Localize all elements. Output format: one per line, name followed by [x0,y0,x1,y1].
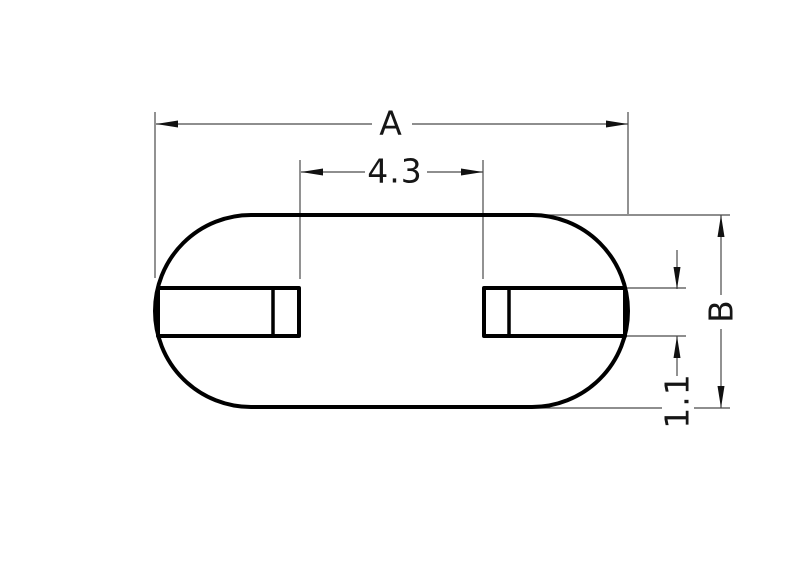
dim-b-arrow-top [718,215,725,237]
right-slot [484,288,625,336]
dim-a-arrow-left [156,121,178,128]
part-linework [155,215,628,407]
dim-b-arrow-bottom [718,386,725,408]
part-outline [155,215,628,407]
dim-slot-height-arrow-upper [674,267,681,289]
dim-b-label: B [705,299,738,323]
dim-slot-height-arrow-lower [674,336,681,358]
arrowheads [156,121,725,409]
dim-a-label: A [379,107,403,140]
dimension-linework [155,112,730,408]
drawing-linework [0,0,800,576]
left-slot [158,288,299,336]
dim-slot-gap-arrow-left [301,169,323,176]
dim-slot-height-label: 1.1 [661,373,694,428]
dim-a-arrow-right [606,121,628,128]
drawing-canvas: A 4.3 B 1.1 [0,0,800,576]
dim-slot-gap-label: 4.3 [367,155,422,188]
dim-slot-gap-arrow-right [461,169,483,176]
